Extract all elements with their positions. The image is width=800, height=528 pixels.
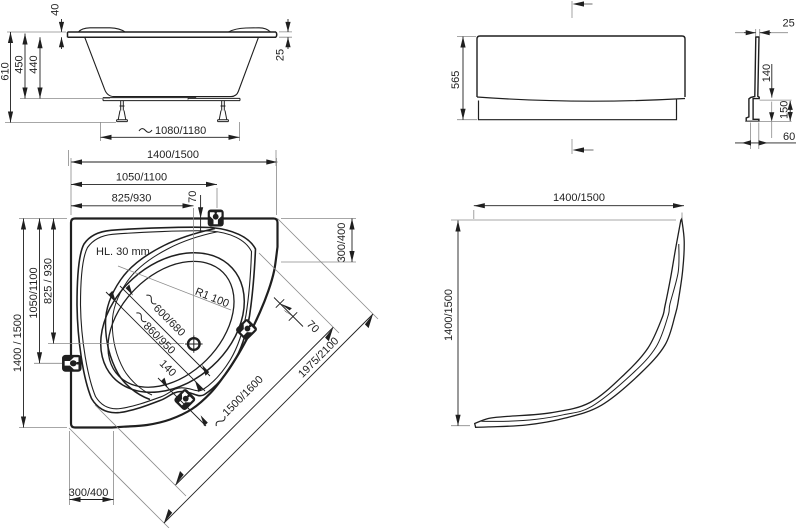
svg-text:HL. 30 mm: HL. 30 mm	[96, 246, 150, 258]
svg-text:825 / 930: 825 / 930	[43, 258, 55, 304]
svg-text:440: 440	[28, 55, 40, 73]
svg-text:610: 610	[0, 62, 12, 80]
svg-text:1400/1500: 1400/1500	[443, 289, 455, 341]
svg-text:70: 70	[187, 191, 199, 203]
svg-text:565: 565	[450, 71, 462, 89]
svg-text:300/400: 300/400	[69, 487, 109, 499]
svg-text:1050/1100: 1050/1100	[116, 172, 167, 184]
svg-text:140: 140	[761, 64, 773, 82]
svg-text:1050/1100: 1050/1100	[28, 267, 40, 318]
svg-text:1400/1500: 1400/1500	[147, 149, 199, 161]
svg-text:40: 40	[50, 4, 62, 16]
svg-text:25: 25	[783, 18, 795, 30]
svg-text:60: 60	[783, 131, 795, 143]
svg-text:1400 / 1500: 1400 / 1500	[12, 314, 24, 372]
svg-text:1400/1500: 1400/1500	[553, 192, 605, 204]
svg-text:1080/1180: 1080/1180	[155, 125, 206, 137]
svg-text:825/930: 825/930	[112, 193, 152, 205]
svg-text:25: 25	[275, 49, 287, 61]
svg-text:150: 150	[779, 101, 791, 119]
svg-text:300/400: 300/400	[336, 223, 348, 263]
svg-text:450: 450	[14, 55, 26, 73]
